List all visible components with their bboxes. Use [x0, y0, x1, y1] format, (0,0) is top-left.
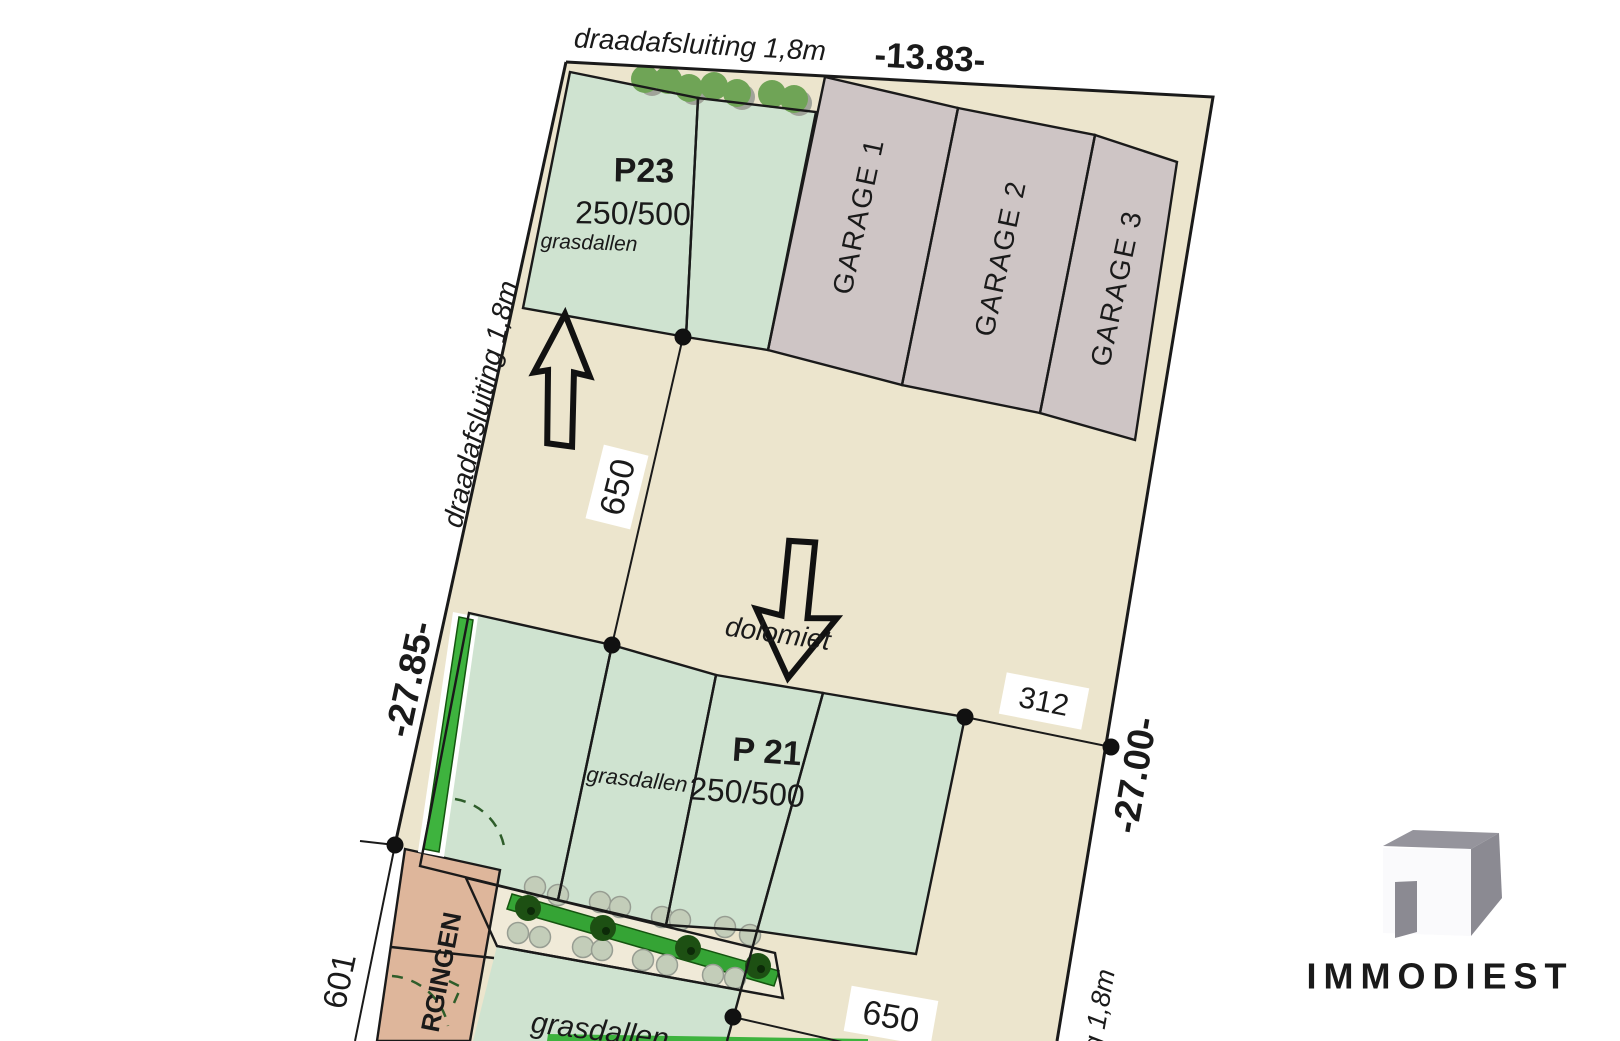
boundary-point — [604, 637, 621, 654]
boundary-point — [675, 329, 692, 346]
svg-text:grasdallen: grasdallen — [540, 230, 638, 256]
svg-text:P23: P23 — [613, 151, 674, 190]
boundary-point — [957, 709, 974, 726]
svg-text:draadafsluiting 1,8m: draadafsluiting 1,8m — [573, 22, 826, 66]
immo-logo: IMMODIEST — [1307, 830, 1574, 997]
svg-text:-13.83-: -13.83- — [874, 35, 987, 80]
logo-right-face — [1471, 833, 1502, 936]
watermark-text: IMMODIEST — [1307, 956, 1574, 997]
label-p23-surface: grasdallen — [540, 230, 638, 256]
svg-text:P 21: P 21 — [731, 731, 803, 774]
label-p23-size: 250/500 — [575, 194, 691, 232]
label-right-length: -27.00- — [1104, 714, 1165, 837]
label-dim-601: 601 — [315, 950, 363, 1012]
label-top-length: -13.83- — [874, 35, 987, 80]
site-plan: draadafsluiting 1,8m -13.83- draadafslui… — [0, 0, 1620, 1041]
label-p23-code: P23 — [613, 151, 674, 190]
boundary-point — [387, 837, 404, 854]
svg-text:ting 1,8m: ting 1,8m — [1072, 967, 1121, 1041]
label-right-fence: ting 1,8m — [1072, 967, 1121, 1041]
svg-text:250/500: 250/500 — [575, 194, 691, 232]
boundary-point — [725, 1009, 742, 1026]
logo-door — [1395, 881, 1417, 938]
svg-text:-27.00-: -27.00- — [1104, 714, 1165, 837]
svg-text:601: 601 — [315, 950, 363, 1012]
label-p21-code: P 21 — [731, 731, 803, 774]
label-top-fence: draadafsluiting 1,8m — [573, 22, 826, 66]
